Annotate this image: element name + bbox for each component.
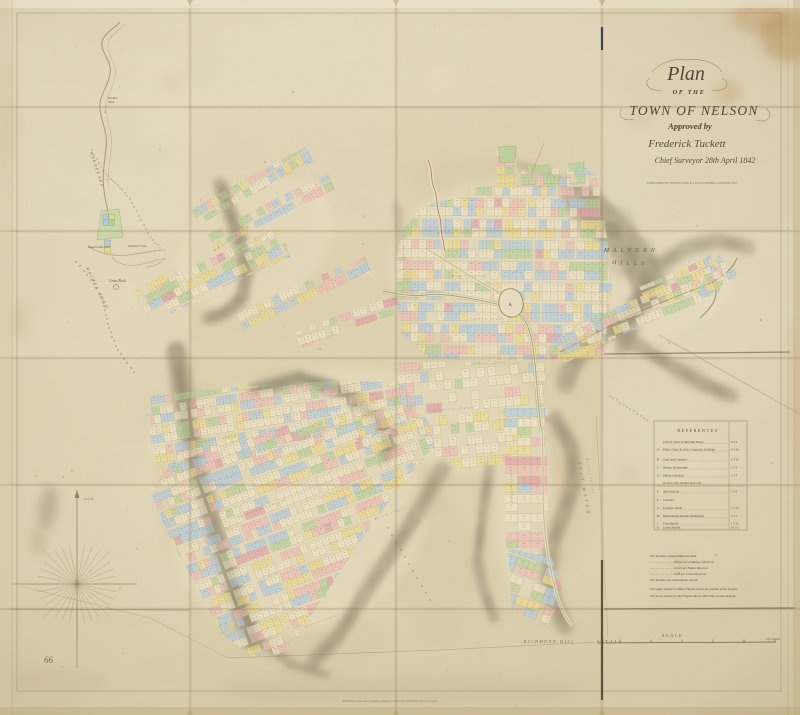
- svg-text:N by E: N by E: [83, 497, 94, 501]
- svg-text:Approved by: Approved by: [667, 121, 712, 131]
- svg-text:10 0 2: 10 0 2: [731, 526, 739, 530]
- svg-text:10 Chains: 10 Chains: [766, 637, 781, 641]
- svg-text:REFERENCES: REFERENCES: [677, 428, 718, 433]
- svg-text:MALVERN: MALVERN: [603, 248, 659, 254]
- svg-text:Cattle Market: Cattle Market: [663, 526, 680, 530]
- svg-text:OF THE: OF THE: [673, 89, 706, 96]
- svg-text:Police Court & other Corporate: Police Court & other Corporate buildings: [662, 448, 716, 452]
- svg-text:RICHMOND HILL: RICHMOND HILL: [523, 640, 575, 644]
- svg-text:66: 66: [44, 655, 54, 665]
- svg-text:SELWYN PLACE: SELWYN PLACE: [470, 318, 505, 321]
- svg-text:2 9 3: 2 9 3: [731, 474, 738, 478]
- svg-text:- - - - - - - - - - - - - Gree: - - - - - - - - - - - - - Green are Nati…: [650, 566, 709, 570]
- svg-text:Cemetery: Cemetery: [663, 498, 675, 502]
- svg-text:Frederick Tuckett: Frederick Tuckett: [647, 138, 726, 150]
- svg-text:6 9 9: 6 9 9: [731, 440, 738, 444]
- svg-text:The Sections coloured Blue are: The Sections coloured Blue are Sold: [650, 554, 697, 558]
- svg-text:H: H: [656, 514, 660, 518]
- svg-text:PUBLISHED BY SMITH ELDER & CO: PUBLISHED BY SMITH ELDER & CO 65 CORNHIL…: [647, 181, 737, 185]
- svg-text:Grass Rock: Grass Rock: [109, 279, 126, 283]
- svg-text:SCALE: SCALE: [662, 633, 683, 638]
- svg-text:A: A: [508, 303, 512, 308]
- svg-text:Bank: Bank: [108, 100, 115, 104]
- svg-text:Meat Market and the Immigrants: Meat Market and the Immigrants: [662, 514, 705, 518]
- svg-text:2 4 7: 2 4 7: [731, 514, 738, 518]
- svg-text:The Sections not coloured are: The Sections not coloured are unsold: [650, 578, 698, 582]
- svg-text:B: B: [657, 458, 659, 462]
- svg-text:1 3 10: 1 3 10: [731, 458, 739, 462]
- svg-text:Published at the New Zealan: Published at the New Zealand Company's O…: [343, 699, 438, 703]
- svg-text:2 6 4: 2 6 4: [731, 466, 738, 470]
- svg-text:D: D: [656, 474, 660, 478]
- svg-text:Chief Surveyor 28th April 1842: Chief Surveyor 28th April 1842: [655, 156, 756, 165]
- svg-text:1 9 6: 1 9 6: [731, 490, 738, 494]
- svg-text:6 4 10: 6 4 10: [731, 448, 739, 452]
- svg-text:The lower number in Red Figure: The lower number in Red Figures &c to wh…: [650, 594, 736, 598]
- svg-text:1 6 10: 1 6 10: [731, 506, 739, 510]
- svg-text:HARDY STREET: HARDY STREET: [451, 275, 487, 278]
- svg-text:Botanical Reserve: Botanical Reserve: [88, 245, 111, 249]
- svg-text:The upper number in Black Figu: The upper number in Black Figures shews …: [650, 587, 738, 591]
- svg-text:Saltwater Point: Saltwater Point: [128, 244, 147, 248]
- svg-text:Plan: Plan: [666, 63, 705, 85]
- svg-text:- - - - - - - - - - - - - Yell: - - - - - - - - - - - - - Yellow are Com…: [650, 560, 715, 564]
- svg-text:- - - - - - - - - - - - - Pink: - - - - - - - - - - - - - Pink are Crown…: [650, 572, 707, 576]
